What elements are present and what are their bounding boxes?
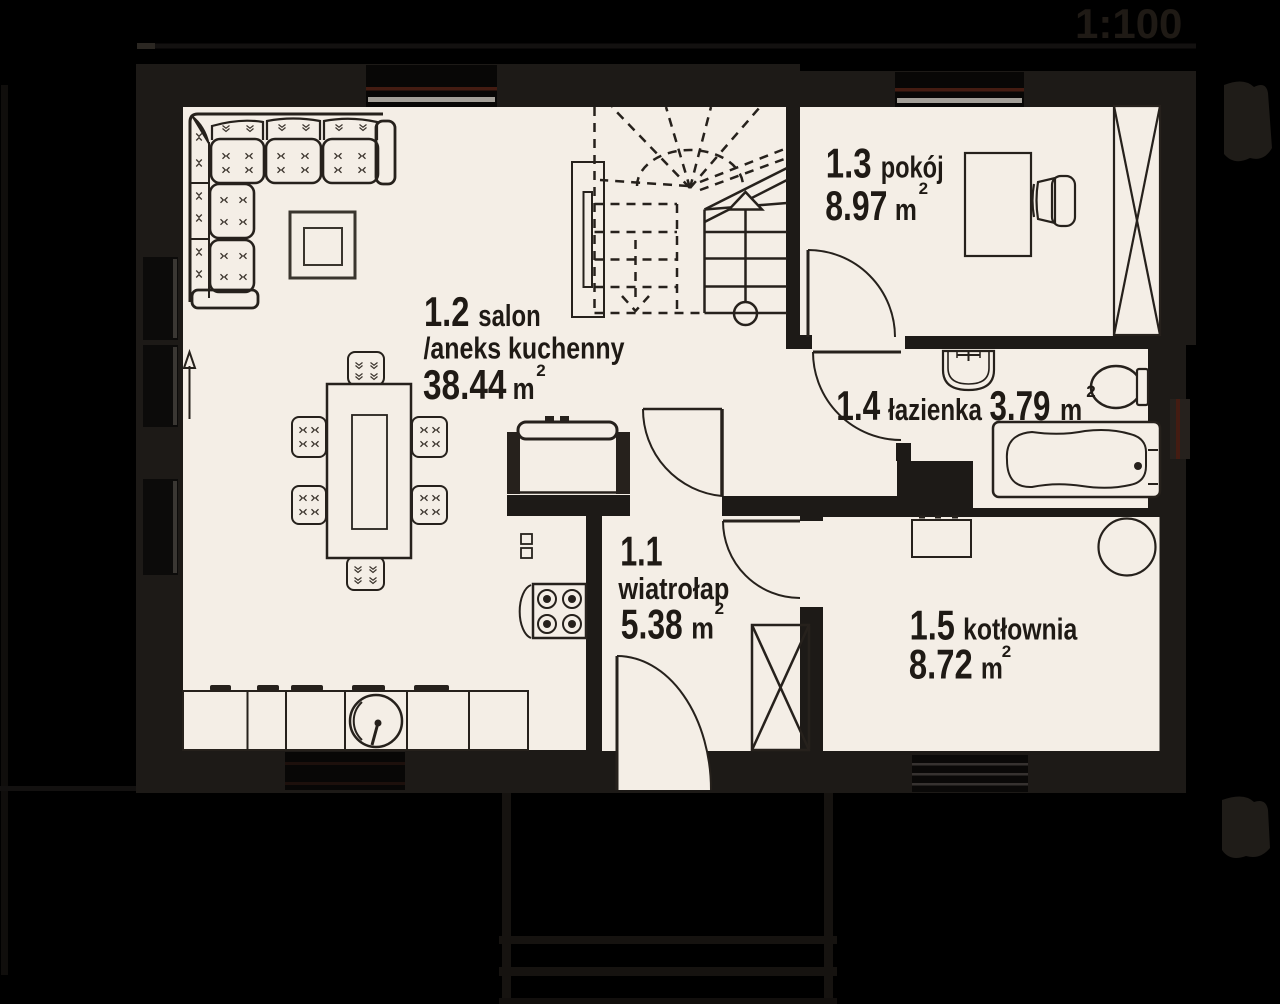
svg-text:pokój: pokój [881,149,944,184]
svg-text:8.72: 8.72 [909,641,973,688]
svg-text:2: 2 [1086,382,1095,401]
svg-text:kotłownia: kotłownia [963,612,1078,646]
svg-text:m: m [895,192,917,226]
svg-text:łazienka: łazienka [888,392,982,427]
svg-text:1.2: 1.2 [424,288,469,335]
svg-text:2: 2 [1002,642,1011,661]
svg-text:3.79: 3.79 [990,381,1051,429]
svg-text:m: m [981,651,1003,685]
svg-text:/aneks kuchenny: /aneks kuchenny [424,331,625,365]
svg-text:m: m [513,371,535,405]
svg-text:2: 2 [715,599,724,618]
svg-text:1:100: 1:100 [1075,0,1182,47]
svg-text:1.3: 1.3 [826,140,872,187]
svg-text:38.44: 38.44 [423,362,506,409]
svg-text:2: 2 [536,361,545,380]
svg-text:2: 2 [919,179,928,198]
svg-text:salon: salon [478,298,540,333]
svg-text:1.1: 1.1 [620,528,662,575]
svg-text:m: m [691,611,714,646]
svg-text:m: m [1060,392,1082,426]
svg-text:1.4: 1.4 [836,382,880,429]
svg-text:5.38: 5.38 [621,600,683,647]
svg-text:8.97: 8.97 [825,182,887,229]
